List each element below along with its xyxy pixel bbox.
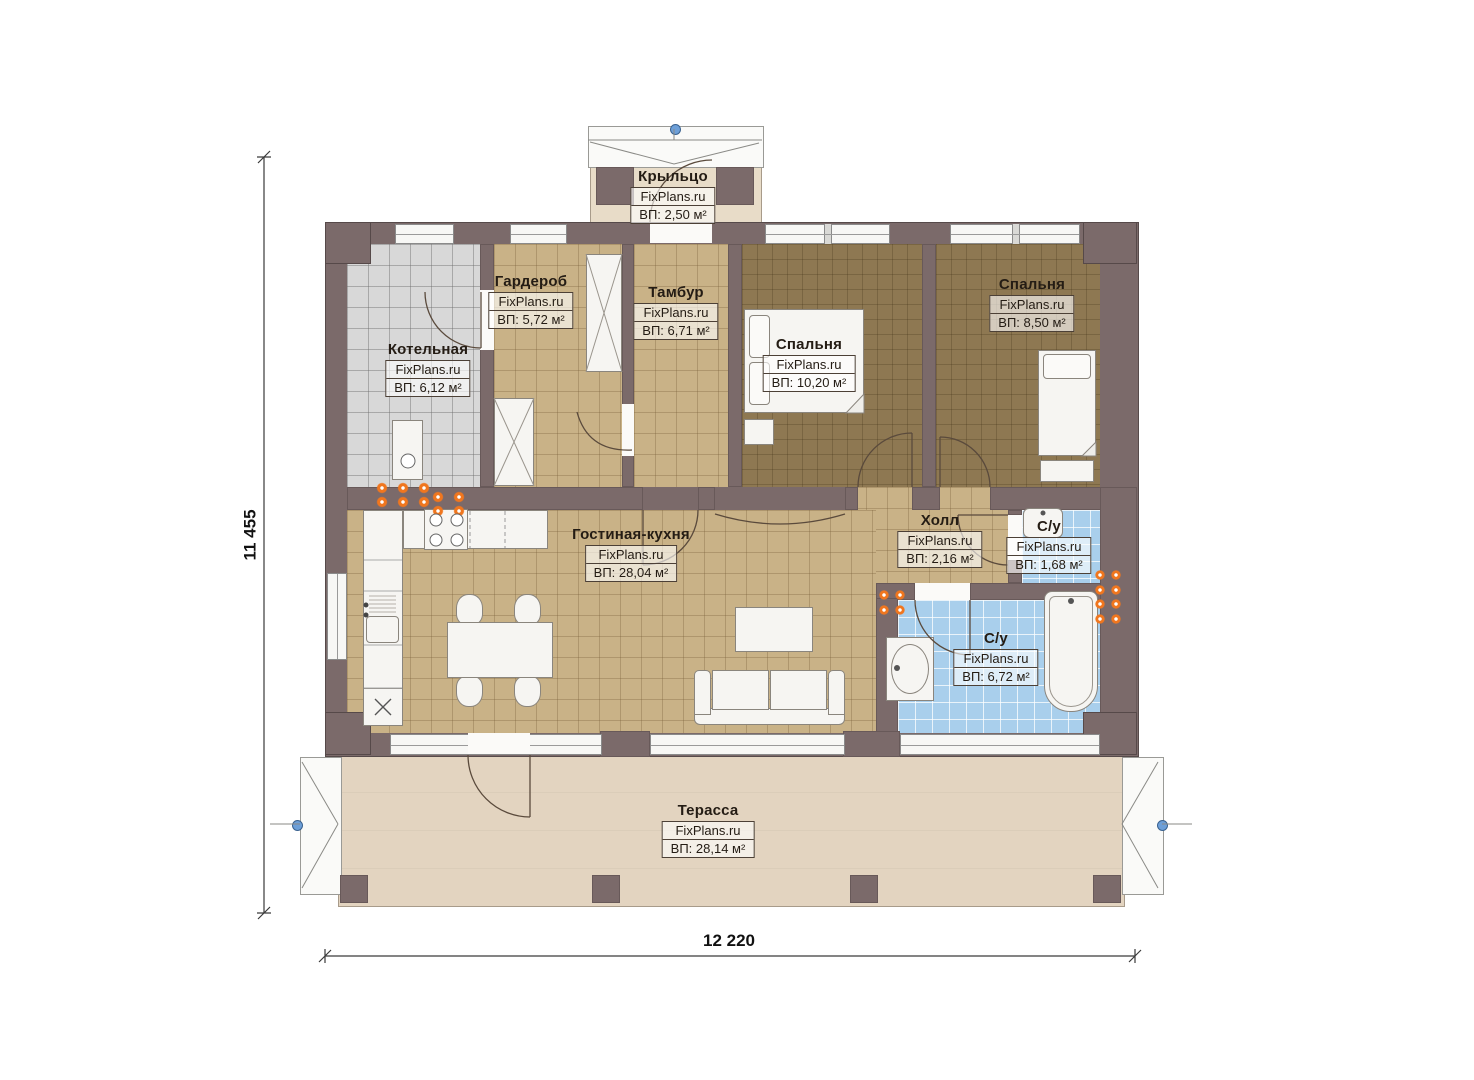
- room-area: ВП: 2,50 м²: [631, 205, 714, 223]
- room-label-living: Гостиная-кухня FixPlans.ru ВП: 28,04 м²: [572, 526, 690, 582]
- dimension-height: 11 455: [241, 509, 261, 560]
- radiator: [1092, 568, 1124, 598]
- room-info-box: FixPlans.ru ВП: 6,71 м²: [633, 303, 718, 340]
- glazing-terrace-center: [650, 734, 845, 755]
- room-label-porch: Крыльцо FixPlans.ru ВП: 2,50 м²: [630, 168, 715, 224]
- room-label-wardrobe: Гардероб FixPlans.ru ВП: 5,72 м²: [488, 273, 573, 329]
- window-mullion: [824, 224, 832, 244]
- closet-wardrobe: [494, 398, 534, 486]
- room-area: ВП: 6,71 м²: [634, 321, 717, 339]
- room-label-boiler: Котельная FixPlans.ru ВП: 6,12 м²: [385, 341, 470, 397]
- room-name: Терасса: [678, 802, 739, 819]
- room-label-vestibule: Тамбур FixPlans.ru ВП: 6,71 м²: [633, 284, 718, 340]
- room-name: Холл: [921, 512, 959, 529]
- sofa-cushion: [770, 670, 827, 710]
- brand-text: FixPlans.ru: [954, 650, 1037, 667]
- survey-marker: [670, 124, 681, 135]
- corner-block: [325, 222, 371, 264]
- bathtub-inner: [1049, 596, 1093, 707]
- wardrobe-door-opening: [622, 404, 634, 456]
- dining-chair: [456, 594, 483, 625]
- brand-text: FixPlans.ru: [898, 532, 981, 549]
- wall-interior-stub: [990, 487, 1115, 510]
- glazing-terrace-right: [900, 734, 1100, 755]
- vestibule-floor: [634, 244, 728, 487]
- brand-text: FixPlans.ru: [764, 356, 855, 373]
- room-info-box: FixPlans.ru ВП: 6,12 м²: [385, 360, 470, 397]
- nightstand: [1040, 460, 1094, 482]
- room-name: Спальня: [999, 276, 1065, 293]
- room-name: С/у: [1037, 518, 1061, 535]
- bottom-wall-pillar: [843, 731, 900, 757]
- room-label-bedroom2: Спальня FixPlans.ru ВП: 8,50 м²: [989, 276, 1074, 332]
- room-info-box: FixPlans.ru ВП: 2,50 м²: [630, 187, 715, 224]
- room-label-bathroom: С/у FixPlans.ru ВП: 6,72 м²: [953, 630, 1038, 686]
- room-label-wc: С/у FixPlans.ru ВП: 1,68 м²: [1006, 518, 1091, 574]
- pillow: [1043, 354, 1091, 379]
- sofa-armrest: [828, 670, 845, 715]
- window-bedroom1: [765, 224, 890, 244]
- room-name: Гардероб: [495, 273, 568, 290]
- dining-table: [447, 622, 553, 678]
- wall-interior-stub: [698, 487, 715, 510]
- room-area: ВП: 5,72 м²: [489, 310, 572, 328]
- room-info-box: FixPlans.ru ВП: 28,14 м²: [662, 821, 755, 858]
- brand-text: FixPlans.ru: [631, 188, 714, 205]
- brand-text: FixPlans.ru: [1007, 538, 1090, 555]
- boiler-unit: [392, 420, 423, 480]
- terrace-pillar: [850, 875, 878, 903]
- brand-text: FixPlans.ru: [634, 304, 717, 321]
- porch-door-opening: [650, 223, 712, 243]
- nightstand: [744, 419, 774, 445]
- bathroom-door-opening: [915, 583, 970, 600]
- room-area: ВП: 8,50 м²: [990, 313, 1073, 331]
- terrace-pillar: [592, 875, 620, 903]
- left-roof-gable: [300, 757, 342, 895]
- radiator: [876, 588, 908, 618]
- terrace-pillar: [340, 875, 368, 903]
- room-info-box: FixPlans.ru ВП: 6,72 м²: [953, 649, 1038, 686]
- porch-pillar-left: [596, 167, 634, 205]
- closet-vestibule: [586, 254, 622, 372]
- radiator: [372, 481, 435, 509]
- brand-text: FixPlans.ru: [489, 293, 572, 310]
- room-name: С/у: [984, 630, 1008, 647]
- room-area: ВП: 1,68 м²: [1007, 555, 1090, 573]
- room-label-bedroom1: Спальня FixPlans.ru ВП: 10,20 м²: [763, 336, 856, 392]
- corner-block: [1083, 222, 1137, 264]
- coffee-table: [735, 607, 813, 652]
- window-boiler: [395, 224, 454, 244]
- bottom-wall-pillar: [600, 731, 650, 757]
- room-area: ВП: 28,04 м²: [586, 563, 677, 581]
- room-name: Спальня: [776, 336, 842, 353]
- washing-machine: [363, 688, 403, 726]
- room-info-box: FixPlans.ru ВП: 10,20 м²: [763, 355, 856, 392]
- room-label-terrace: Терасса FixPlans.ru ВП: 28,14 м²: [662, 802, 755, 858]
- brand-text: FixPlans.ru: [586, 546, 677, 563]
- wall-interior-stub: [845, 487, 858, 510]
- dimension-width: 12 220: [703, 931, 755, 951]
- room-info-box: FixPlans.ru ВП: 28,04 м²: [585, 545, 678, 582]
- room-name: Котельная: [388, 341, 468, 358]
- terrace-pillar: [1093, 875, 1121, 903]
- dining-chair: [456, 676, 483, 707]
- sofa-armrest: [694, 670, 711, 715]
- sofa-backrest: [694, 708, 845, 725]
- wall-bedroom1-bedroom2: [922, 244, 936, 487]
- room-name: Гостиная-кухня: [572, 526, 690, 543]
- room-name: Тамбур: [648, 284, 704, 301]
- window-bedroom2: [950, 224, 1080, 244]
- room-area: ВП: 2,16 м²: [898, 549, 981, 567]
- room-info-box: FixPlans.ru ВП: 8,50 м²: [989, 295, 1074, 332]
- window-living-left: [327, 573, 347, 660]
- window-mullion: [1012, 224, 1020, 244]
- radiator: [1092, 597, 1124, 627]
- kitchen-sink: [366, 616, 399, 643]
- room-name: Крыльцо: [638, 168, 708, 185]
- bathroom-sink: [891, 644, 929, 694]
- room-info-box: FixPlans.ru ВП: 1,68 м²: [1006, 537, 1091, 574]
- porch-pillar-right: [716, 167, 754, 205]
- wall-vestibule-bedroom1: [728, 244, 742, 487]
- sofa-cushion: [712, 670, 769, 710]
- terrace-door-opening: [468, 733, 530, 754]
- dining-chair: [514, 594, 541, 625]
- room-area: ВП: 28,14 м²: [663, 839, 754, 857]
- room-area: ВП: 6,12 м²: [386, 378, 469, 396]
- brand-text: FixPlans.ru: [990, 296, 1073, 313]
- radiator: [428, 490, 470, 518]
- dining-chair: [514, 676, 541, 707]
- room-area: ВП: 6,72 м²: [954, 667, 1037, 685]
- brand-text: FixPlans.ru: [663, 822, 754, 839]
- room-info-box: FixPlans.ru ВП: 5,72 м²: [488, 292, 573, 329]
- room-area: ВП: 10,20 м²: [764, 373, 855, 391]
- room-info-box: FixPlans.ru ВП: 2,16 м²: [897, 531, 982, 568]
- window-wardrobe: [510, 224, 567, 244]
- floor-plan-canvas: Крыльцо FixPlans.ru ВП: 2,50 м² Котельна…: [0, 0, 1474, 1080]
- survey-marker: [1157, 820, 1168, 831]
- brand-text: FixPlans.ru: [386, 361, 469, 378]
- bathtub: [1044, 591, 1098, 712]
- survey-marker: [292, 820, 303, 831]
- room-label-hall: Холл FixPlans.ru ВП: 2,16 м²: [897, 512, 982, 568]
- wall-interior-stub: [912, 487, 940, 510]
